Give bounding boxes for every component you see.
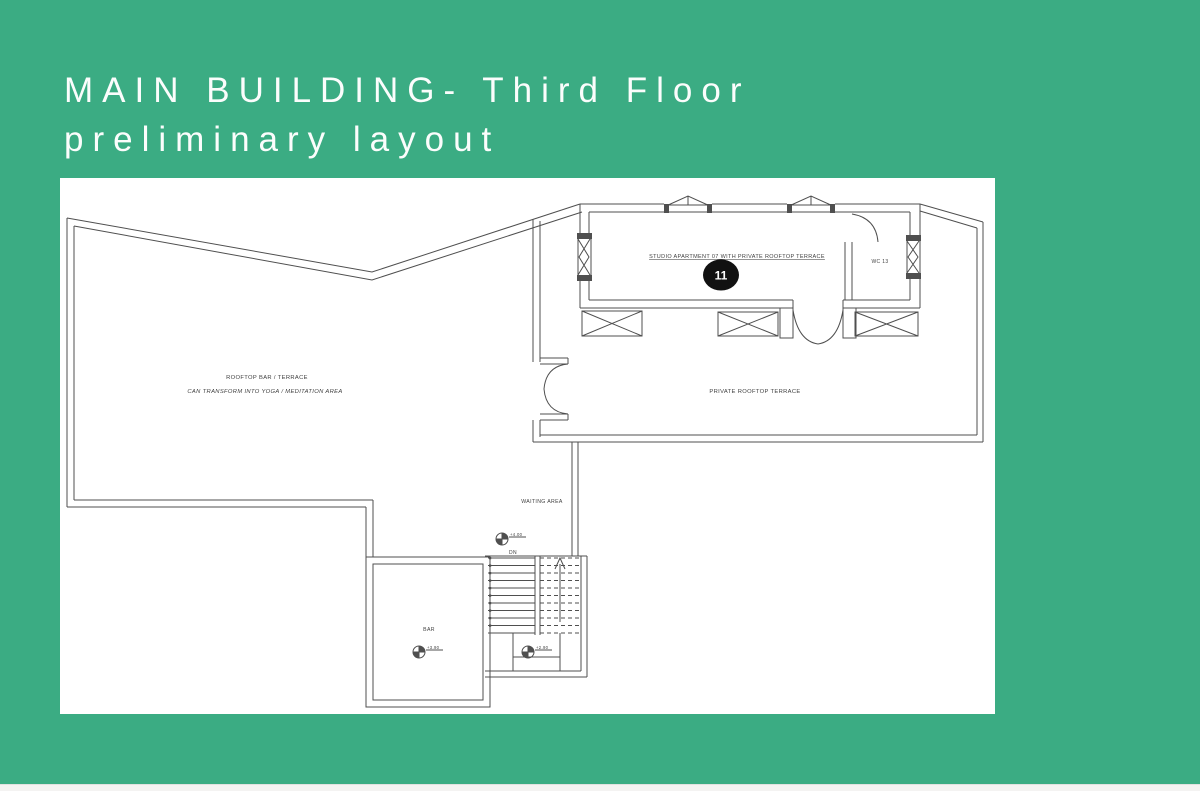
bar-label: BAR (423, 627, 435, 633)
page-title-line2: preliminary layout (64, 115, 751, 164)
unit-number-badge: 11 (703, 260, 739, 291)
waiting-area-walls (572, 442, 578, 556)
crossed-box (718, 312, 778, 336)
double-door-leaf (544, 364, 568, 389)
level-value-landing: +2.90 (536, 645, 549, 650)
level-marker-landing: +2.90 (522, 645, 552, 658)
level-marker-bar: +3.90 (413, 645, 443, 658)
crossed-box (855, 312, 918, 336)
level-value-bar: +3.90 (427, 645, 440, 650)
slide: MAIN BUILDING- Third Floor preliminary l… (0, 0, 1200, 791)
floor-plan-panel: +4.00 +3.90 +2.90 STUDIO APARTMENT 07 WI… (60, 178, 995, 714)
terrace-door-leaf (818, 310, 843, 344)
stairs (488, 556, 581, 671)
level-value-waiting: +4.00 (510, 532, 523, 537)
window-icon (577, 233, 592, 281)
page-title-line1: MAIN BUILDING- Third Floor (64, 66, 751, 115)
wc-door-leaf (852, 214, 878, 242)
page-title: MAIN BUILDING- Third Floor preliminary l… (64, 66, 751, 164)
unit-number: 11 (715, 269, 728, 283)
studio-apartment-label: STUDIO APARTMENT 07 WITH PRIVATE ROOFTOP… (649, 254, 825, 260)
private-terrace-label: PRIVATE ROOFTOP TERRACE (709, 389, 800, 395)
double-door-leaf (544, 389, 568, 414)
stair-direction-label: DN (509, 550, 517, 556)
roof-window-icon (664, 196, 712, 213)
rooftop-bar-note: CAN TRANSFORM INTO YOGA / MEDITATION ARE… (187, 389, 342, 395)
wc-label: WC 13 (871, 259, 888, 265)
rooftop-bar-label: ROOFTOP BAR / TERRACE (226, 375, 308, 381)
level-marker-waiting: +4.00 (496, 532, 526, 545)
window-icon (906, 235, 921, 279)
bottom-strip (0, 784, 1200, 791)
roof-window-icon (787, 196, 835, 213)
terrace-door-leaf (793, 310, 818, 344)
rooftop-bar-terrace-walls (67, 204, 582, 557)
waiting-area-label: WAITING AREA (521, 499, 563, 505)
crossed-box (582, 311, 642, 336)
terrace-partition-wall (533, 219, 568, 442)
stair-enclosure (485, 556, 587, 677)
floor-plan-drawing: +4.00 +3.90 +2.90 STUDIO APARTMENT 07 WI… (60, 178, 995, 714)
